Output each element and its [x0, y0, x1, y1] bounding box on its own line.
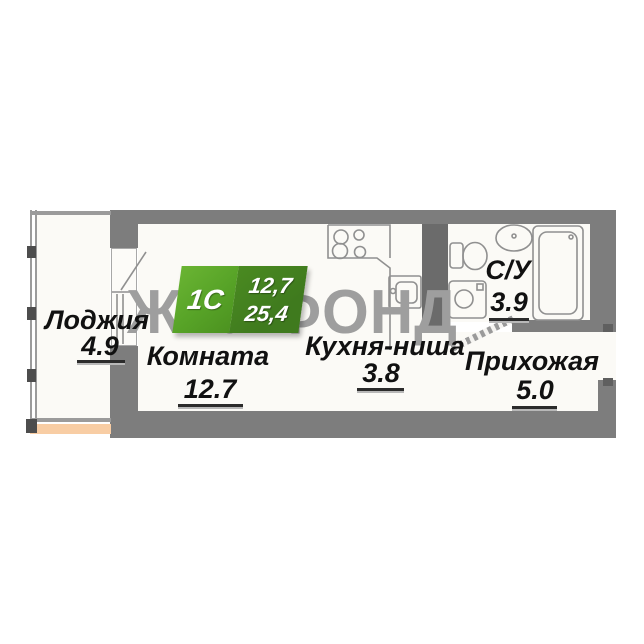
room-name-hallway: Прихожая: [465, 347, 599, 377]
room-name-room: Комната: [147, 342, 269, 372]
badge-type-label: 1С: [185, 284, 225, 316]
room-area-room: 12.7: [184, 375, 237, 405]
badge-area-section: 12,7 25,4: [229, 266, 307, 333]
area-underline-room: [178, 404, 243, 407]
room-area-loggia: 4.9: [81, 332, 119, 362]
floor-plan: ЖИЛФОНД Лоджия 4.9 Комната 12.7 Кухня-ни…: [0, 0, 644, 644]
washbasin-icon: [496, 225, 532, 251]
room-area-hallway: 5.0: [516, 376, 554, 406]
room-area-bathroom: 3.9: [490, 288, 528, 318]
room-area-kitchen: 3.8: [362, 359, 400, 389]
room-name-bathroom: С/У: [485, 256, 530, 286]
area-underline-loggia: [77, 360, 125, 363]
area-underline-bathroom: [489, 318, 529, 321]
bathtub-icon: [533, 226, 583, 320]
area-underline-kitchen: [357, 388, 404, 391]
toilet-icon: [450, 243, 487, 270]
area-underline-hallway: [512, 406, 557, 409]
badge-total-area: 25,4: [243, 300, 290, 328]
badge-living-area: 12,7: [247, 272, 294, 300]
apartment-badge: 1С 12,7 25,4: [172, 266, 307, 333]
badge-type-section: 1С: [172, 266, 238, 333]
